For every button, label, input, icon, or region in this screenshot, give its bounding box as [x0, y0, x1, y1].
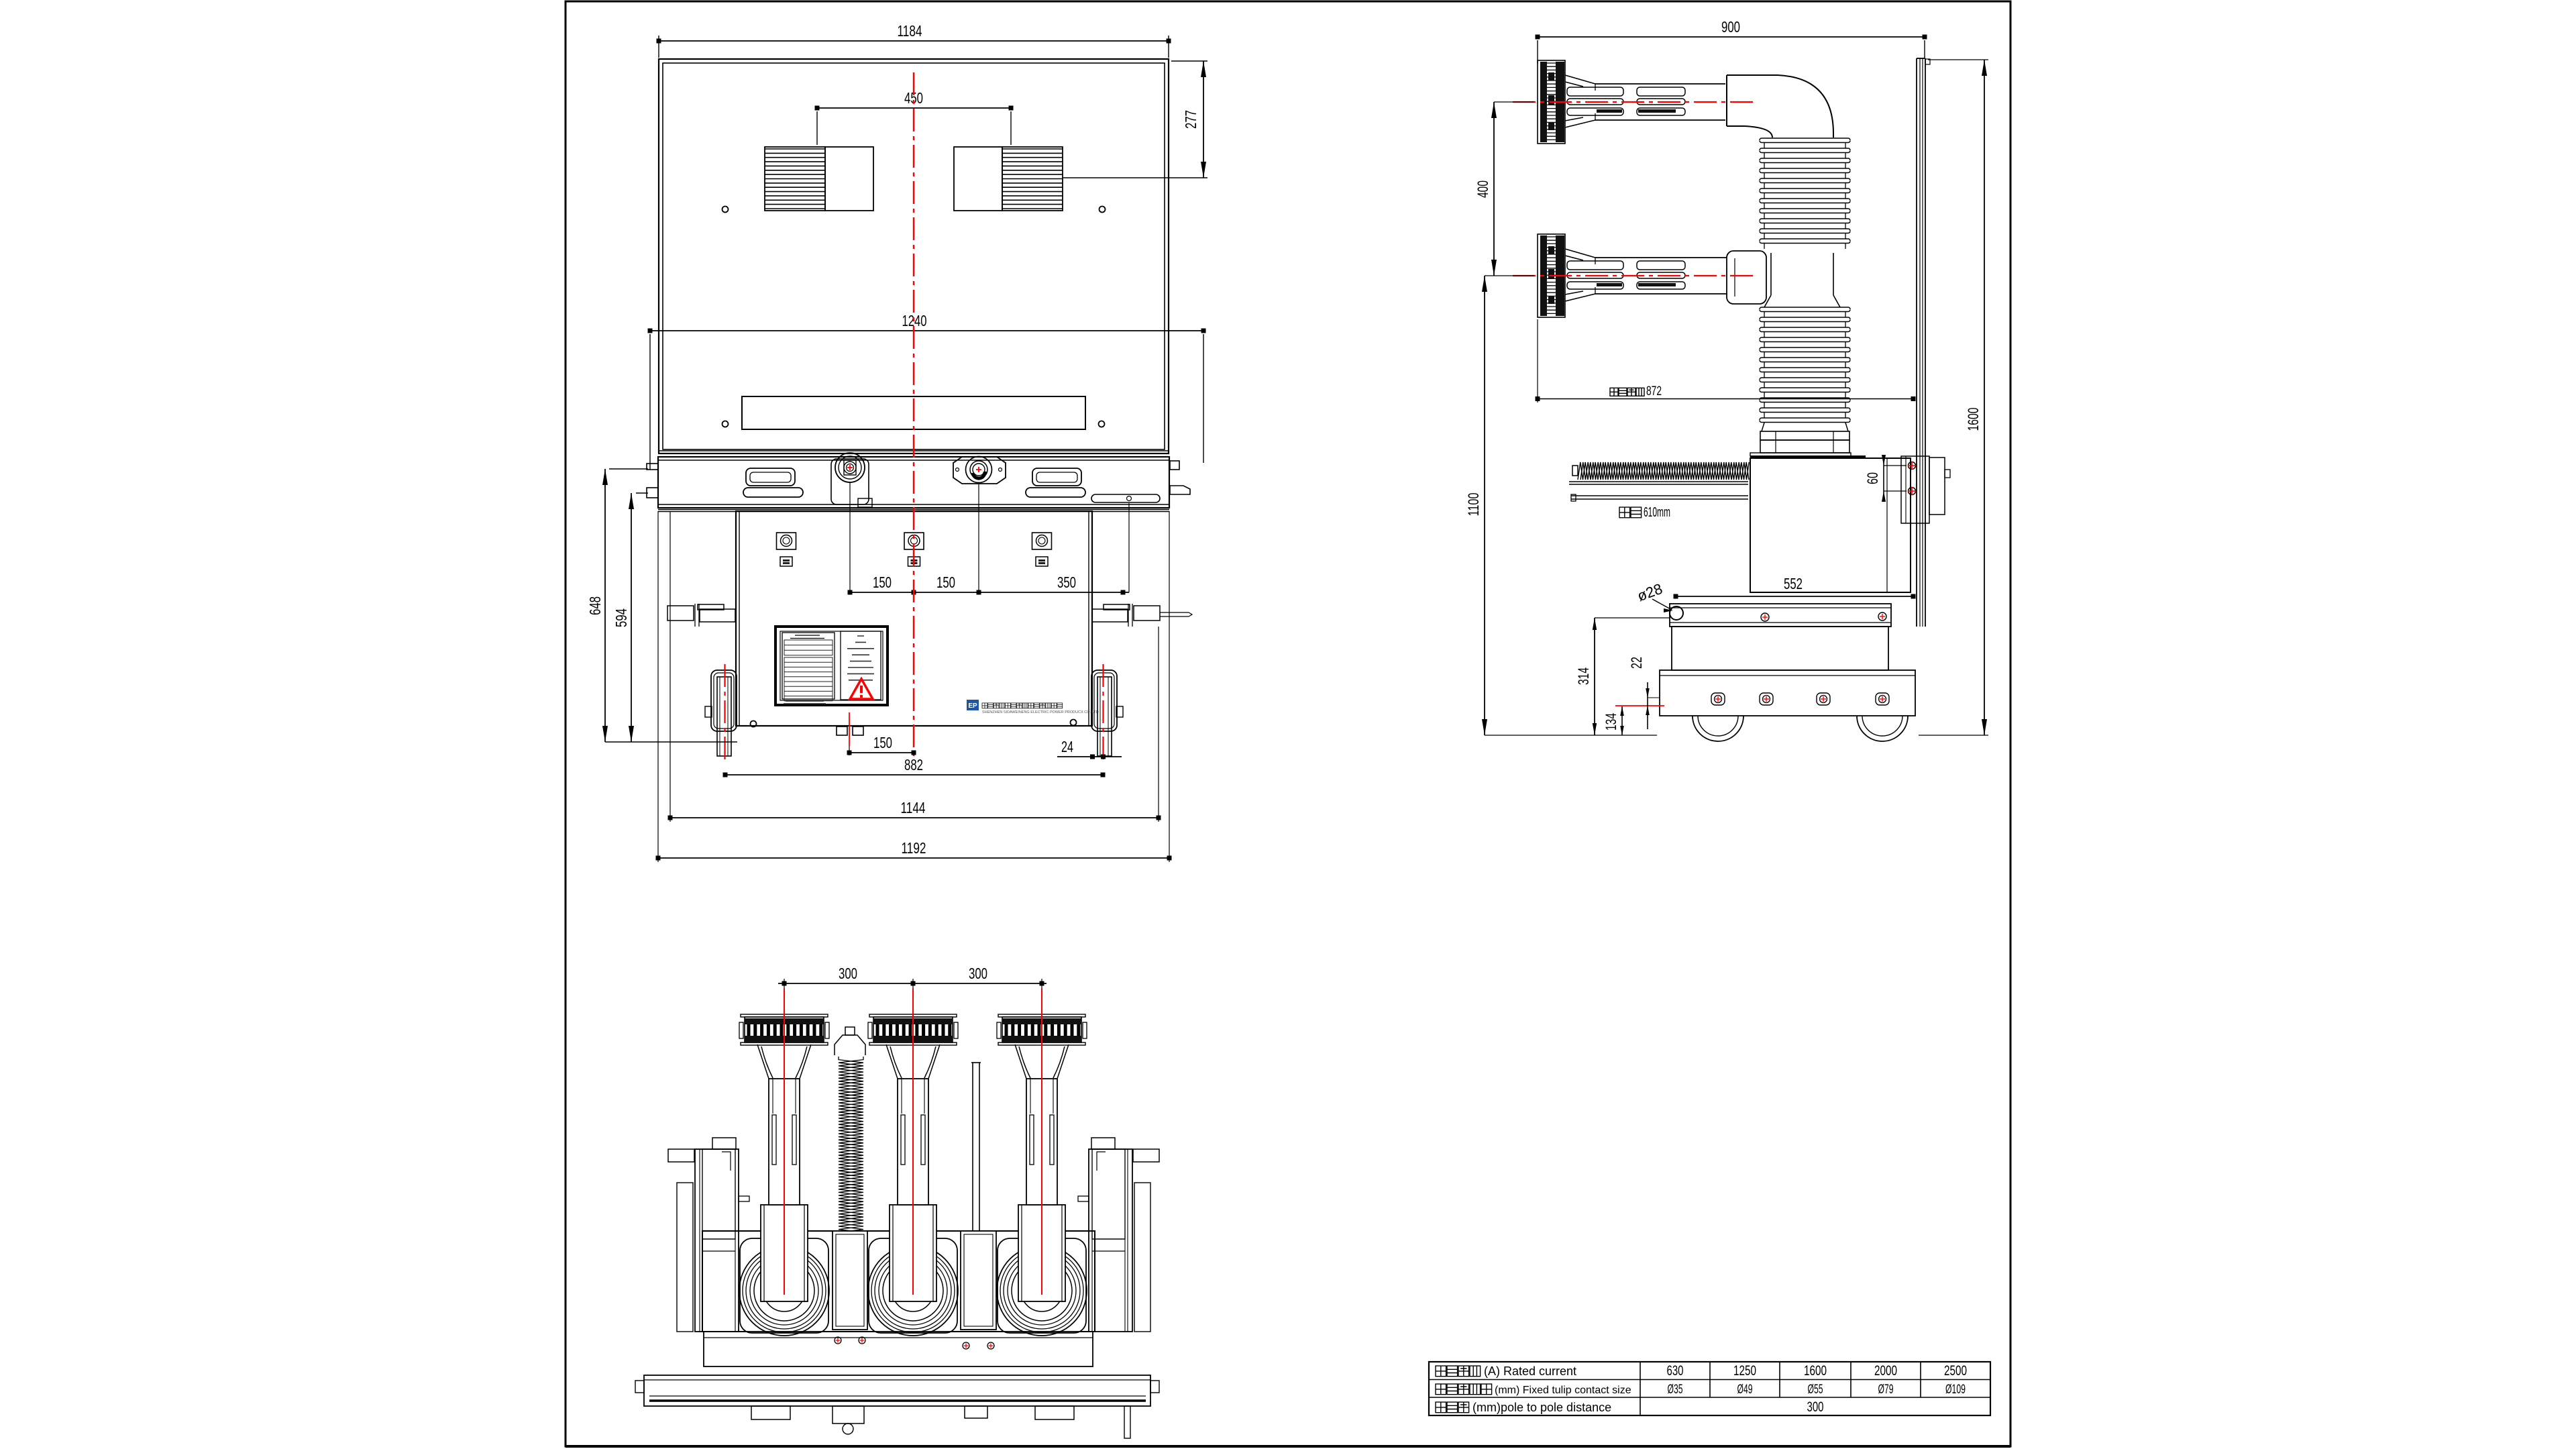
- svg-text:2500: 2500: [1944, 1363, 1967, 1379]
- svg-text:350: 350: [1057, 574, 1076, 591]
- svg-text:1184: 1184: [898, 22, 922, 40]
- svg-text:1100: 1100: [1465, 493, 1482, 517]
- svg-text:400: 400: [1474, 180, 1491, 198]
- svg-text:Ø109: Ø109: [1945, 1383, 1966, 1397]
- svg-text:1600: 1600: [1804, 1363, 1827, 1379]
- svg-text:2000: 2000: [1874, 1363, 1897, 1379]
- svg-text:1192: 1192: [902, 839, 926, 857]
- svg-text:900: 900: [1721, 18, 1740, 36]
- svg-text:134: 134: [1603, 713, 1619, 731]
- svg-text:Ø35: Ø35: [1668, 1383, 1683, 1397]
- svg-text:Ø55: Ø55: [1808, 1383, 1823, 1397]
- svg-text:150: 150: [936, 574, 955, 591]
- svg-text:22: 22: [1628, 657, 1645, 669]
- svg-text:314: 314: [1575, 667, 1592, 685]
- svg-text:277: 277: [1182, 110, 1199, 129]
- svg-text:882: 882: [904, 756, 923, 773]
- svg-text:648: 648: [586, 596, 604, 615]
- svg-text:Ø79: Ø79: [1878, 1383, 1894, 1397]
- svg-text:24: 24: [1061, 738, 1073, 755]
- svg-text:(mm) Fixed tulip contact size: (mm) Fixed tulip contact size: [1495, 1385, 1631, 1396]
- svg-text:300: 300: [839, 965, 857, 982]
- svg-text:552: 552: [1784, 575, 1803, 592]
- svg-text:Ø49: Ø49: [1737, 1383, 1753, 1397]
- svg-text:1250: 1250: [1733, 1363, 1756, 1379]
- svg-text:(mm)pole to pole distance: (mm)pole to pole distance: [1472, 1401, 1611, 1414]
- svg-text:1600: 1600: [1965, 408, 1982, 431]
- svg-text:SHENZHEN SIDAWEINENG ELECTRIC: SHENZHEN SIDAWEINENG ELECTRIC POWER PROD…: [982, 710, 1099, 714]
- svg-text:872: 872: [1646, 384, 1662, 398]
- svg-text:300: 300: [1807, 1399, 1824, 1415]
- svg-text:60: 60: [1864, 472, 1881, 484]
- svg-text:150: 150: [873, 734, 892, 751]
- svg-text:150: 150: [873, 574, 892, 591]
- svg-text:630: 630: [1667, 1363, 1684, 1379]
- svg-text:(A) Rated current: (A) Rated current: [1484, 1364, 1576, 1378]
- svg-text:610mm: 610mm: [1644, 505, 1670, 520]
- svg-text:1144: 1144: [901, 799, 926, 816]
- svg-text:300: 300: [969, 965, 987, 982]
- svg-text:594: 594: [612, 608, 630, 627]
- svg-text:EP: EP: [968, 702, 977, 710]
